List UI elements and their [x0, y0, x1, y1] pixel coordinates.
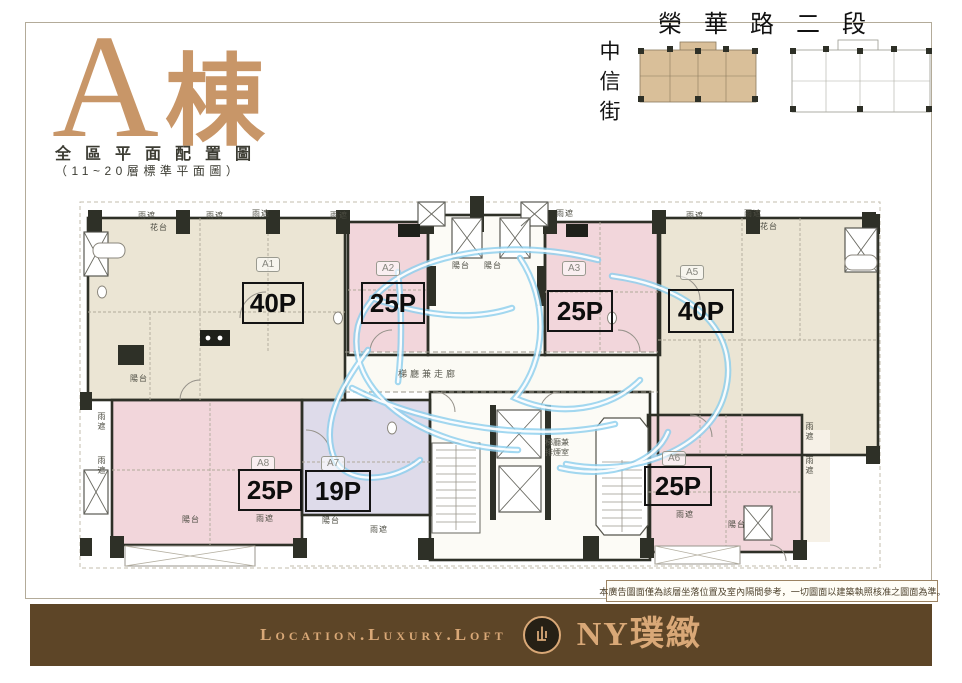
- annotation-label: 雨遮: [676, 509, 694, 520]
- annotation-label: 花台: [150, 222, 168, 233]
- disclaimer-text: 本廣告圖面僅為該層坐落位置及室內隔間參考，一切圖面以建築執照核准之圖面為準。: [599, 584, 946, 597]
- unit-size-a2: 25P: [361, 282, 425, 324]
- unit-id-a2: A2: [376, 261, 400, 276]
- plan-subtitle: 全區平面配置圖: [55, 140, 265, 164]
- annotation-label: 陽台: [728, 519, 746, 530]
- unit-id-a3: A3: [562, 261, 586, 276]
- lll-monogram-logo-icon: [523, 616, 561, 654]
- footer-tagline: Location.Luxury.Loft: [260, 625, 507, 645]
- annotation-label: 雨遮: [256, 513, 274, 524]
- smoke-room-label-line2: 排煙室: [545, 448, 569, 458]
- annotation-label: 陽台: [322, 515, 340, 526]
- annotation-label: 雨遮: [556, 208, 574, 219]
- keyplan-building-b: [790, 40, 932, 112]
- floor-plan-page: A棟 全區平面配置圖 （11~20層標準平面圖） 榮華路二段 中信街 A1 40…: [0, 0, 962, 683]
- annotation-label: 花台: [760, 221, 778, 232]
- footer-brand-name: NY璞緻: [577, 618, 702, 652]
- annotation-label: 陽台: [484, 260, 502, 271]
- annotation-label: 雨遮: [96, 412, 107, 432]
- unit-id-a1: A1: [256, 257, 280, 272]
- annotation-label: 陽台: [130, 373, 148, 384]
- annotation-label: 陽台: [182, 514, 200, 525]
- unit-size-a1: 40P: [242, 282, 304, 324]
- unit-id-a7: A7: [321, 456, 345, 471]
- annotation-label: 雨遮: [206, 210, 224, 221]
- unit-id-a5: A5: [680, 265, 704, 280]
- annotation-label: 雨遮: [370, 524, 388, 535]
- unit-size-a5: 40P: [668, 289, 734, 333]
- annotation-label: 雨遮: [804, 422, 815, 442]
- annotation-label: 雨遮: [138, 210, 156, 221]
- annotation-label: 雨遮: [330, 210, 348, 221]
- road-name-label: 榮華路二段: [658, 4, 888, 39]
- annotation-label: 雨遮: [686, 210, 704, 221]
- lll-monogram-glyph: [532, 625, 552, 645]
- unit-size-a8: 25P: [238, 469, 302, 511]
- annotation-label: 雨遮: [744, 208, 762, 219]
- plan-subtitle-note: （11~20層標準平面圖）: [55, 162, 242, 179]
- disclaimer-box: 本廣告圖面僅為該層坐落位置及室內隔間參考，一切圖面以建築執照核准之圖面為準。: [606, 580, 938, 602]
- footer-brand-bar: Location.Luxury.Loft NY璞緻: [30, 604, 932, 666]
- annotation-label: 雨遮: [252, 208, 270, 219]
- keyplan-building-a: [638, 42, 758, 102]
- street-name-label: 中信街: [594, 40, 624, 130]
- smoke-room-label-line1: 梯廳兼: [545, 438, 569, 448]
- unit-size-a3: 25P: [547, 290, 613, 332]
- annotation-label: 陽台: [452, 260, 470, 271]
- annotation-label: 雨遮: [804, 456, 815, 476]
- title-block: A棟: [52, 28, 265, 153]
- unit-id-a6: A6: [662, 451, 686, 466]
- corridor-label: 梯廳兼走廊: [398, 367, 458, 380]
- unit-size-a6: 25P: [644, 466, 712, 506]
- annotation-label: 雨遮: [96, 456, 107, 476]
- unit-size-a7: 19P: [305, 470, 371, 512]
- smoke-room-label: 梯廳兼 排煙室: [545, 438, 569, 458]
